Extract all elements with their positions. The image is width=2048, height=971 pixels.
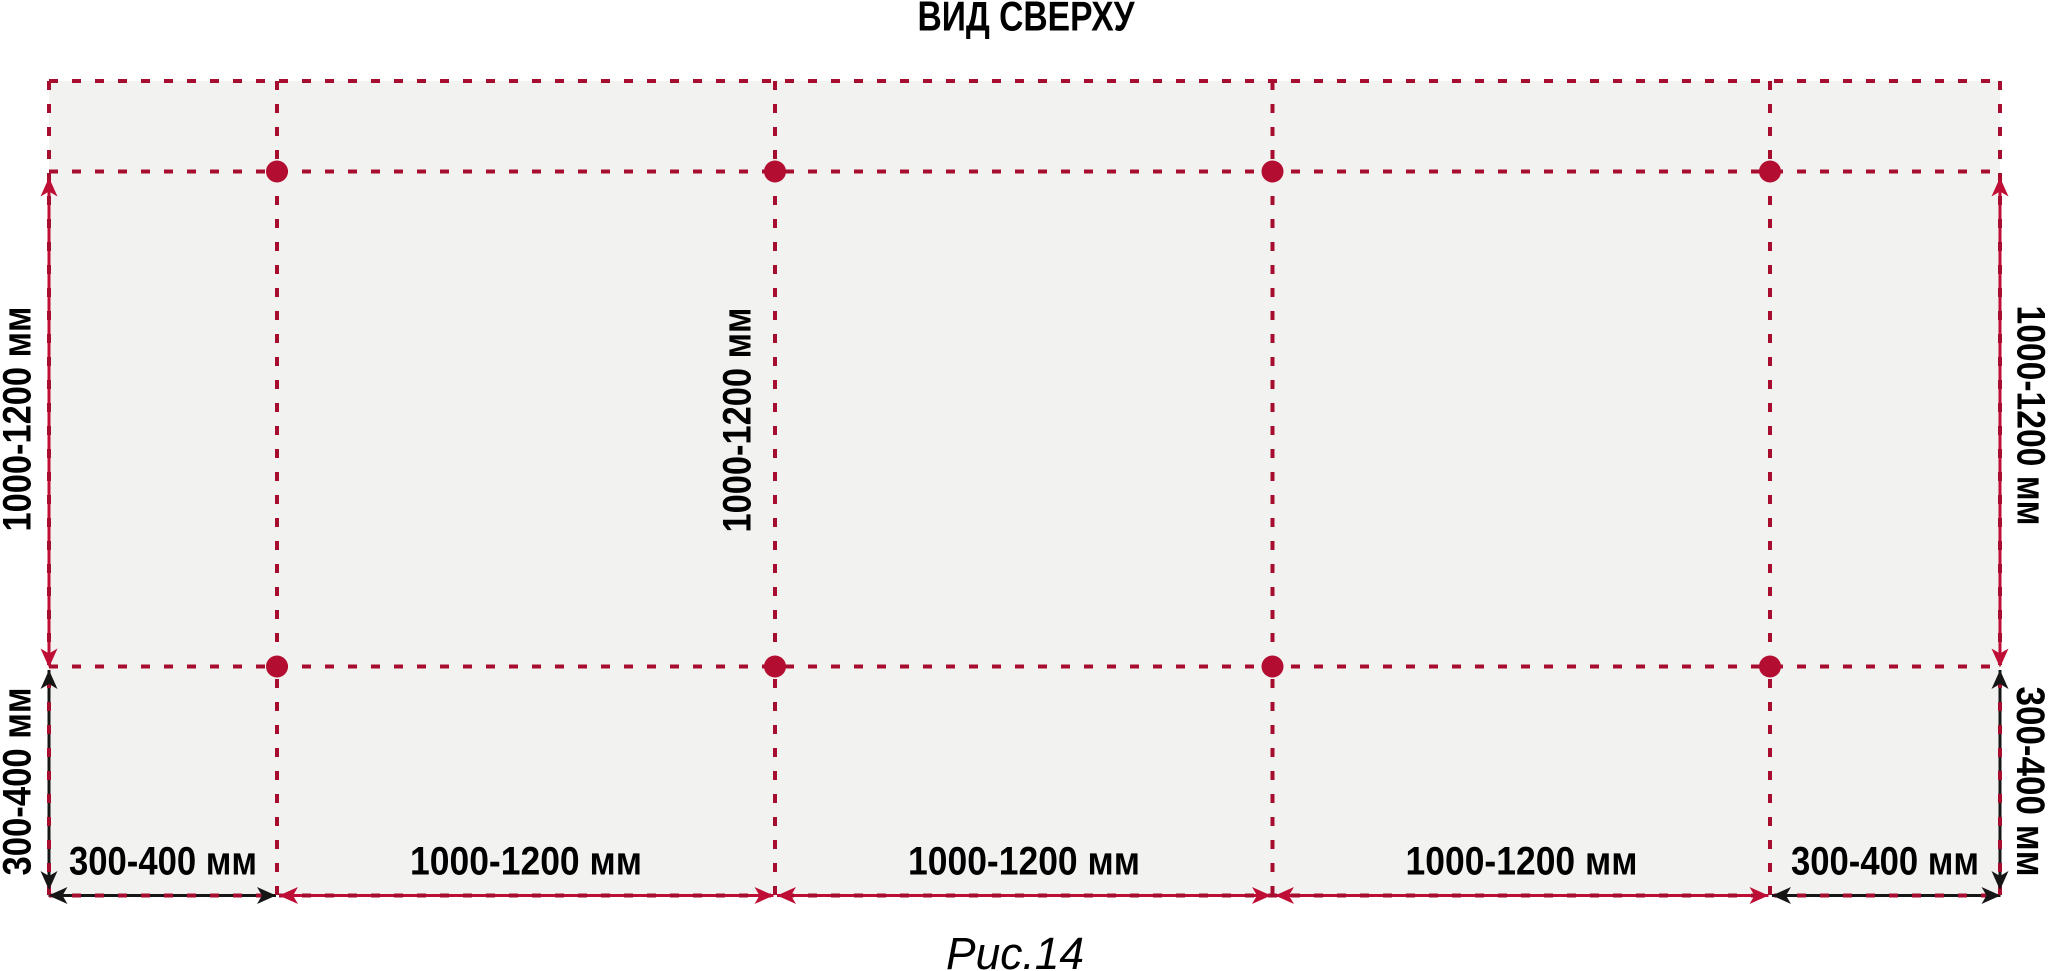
svg-text:1000-1200 мм: 1000-1200 мм [0, 307, 40, 532]
svg-text:300-400 мм: 300-400 мм [2008, 687, 2048, 877]
svg-text:300-400 мм: 300-400 мм [1791, 840, 1979, 884]
svg-text:1000-1200 мм: 1000-1200 мм [2009, 306, 2048, 526]
svg-text:300-400 мм: 300-400 мм [0, 688, 40, 876]
svg-text:1000-1200 мм: 1000-1200 мм [1406, 840, 1638, 884]
svg-text:ВИД СВЕРХУ: ВИД СВЕРХУ [918, 0, 1136, 40]
svg-text:1000-1200 мм: 1000-1200 мм [716, 308, 760, 533]
svg-text:1000-1200 мм: 1000-1200 мм [908, 840, 1140, 884]
svg-text:1000-1200 мм: 1000-1200 мм [410, 840, 642, 884]
svg-text:Рис.14: Рис.14 [946, 928, 1084, 971]
svg-text:300-400 мм: 300-400 мм [69, 840, 257, 884]
